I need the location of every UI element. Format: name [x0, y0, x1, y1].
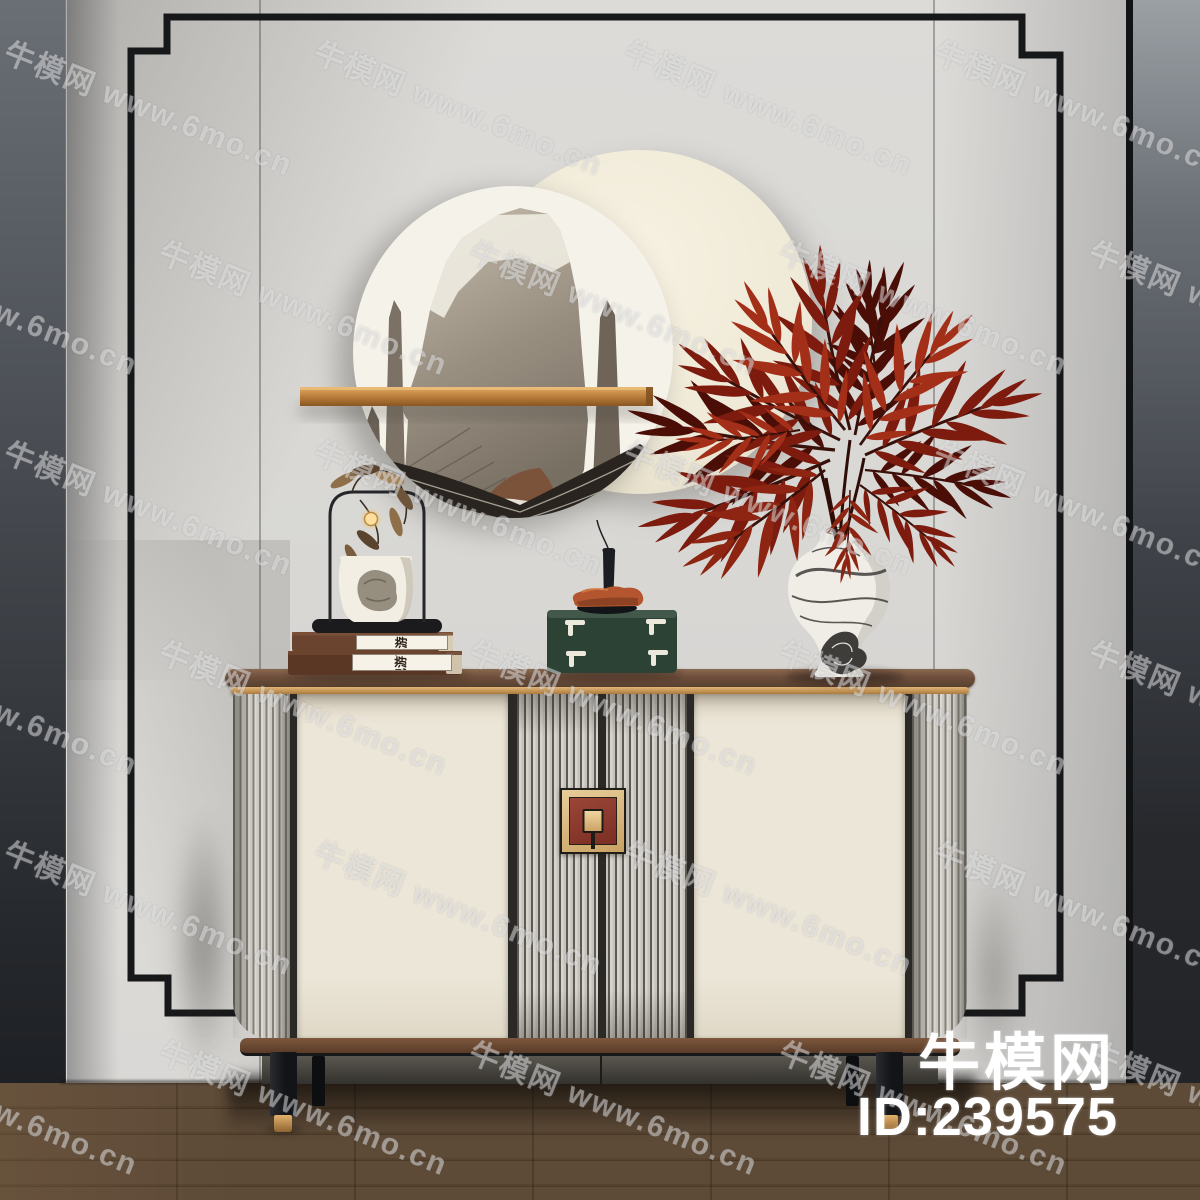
cabinet-body: [233, 694, 967, 1038]
cabinet-plinth: [262, 1056, 938, 1084]
cabinet-top: [225, 669, 975, 688]
left-wall-panel: [0, 0, 66, 1084]
right-wall-column: [1126, 0, 1200, 1200]
cabinet-door-left: [297, 694, 508, 1038]
cabinet-gap: [687, 694, 694, 1038]
book-spine-label-top: 西游记: [356, 635, 448, 650]
cabinet-fluted-corner-right: [912, 694, 967, 1038]
book-spine-text: 西游记: [395, 635, 409, 650]
cabinet-wall-shadow-left: [172, 810, 234, 1080]
handle-stem: [591, 833, 595, 849]
cabinet-brass-trim: [231, 687, 969, 694]
cabinet-gap: [905, 694, 912, 1038]
cabinet-fluted-corner-left: [233, 694, 290, 1038]
model-id: ID:239575: [857, 1086, 1118, 1148]
cabinet-handle: [560, 788, 626, 854]
rendered-scene: 西游记 西游记: [0, 0, 1200, 1200]
left-panel-shadow: [67, 0, 119, 1084]
cabinet-front-leg-left: [270, 1052, 297, 1116]
cabinet-fluted-center: [517, 694, 687, 1038]
handle-knob: [583, 809, 604, 833]
cabinet-bottom-rail: [240, 1038, 960, 1056]
leg-brass-foot: [274, 1115, 292, 1132]
book-spine-text: 西游记: [395, 654, 410, 671]
cabinet-back-leg-left: [312, 1056, 325, 1106]
cabinet-gap: [508, 694, 517, 1038]
book-spine-label-bottom: 西游记: [352, 654, 452, 671]
cabinet-door-right: [694, 694, 905, 1038]
cabinet-gap: [290, 694, 297, 1038]
